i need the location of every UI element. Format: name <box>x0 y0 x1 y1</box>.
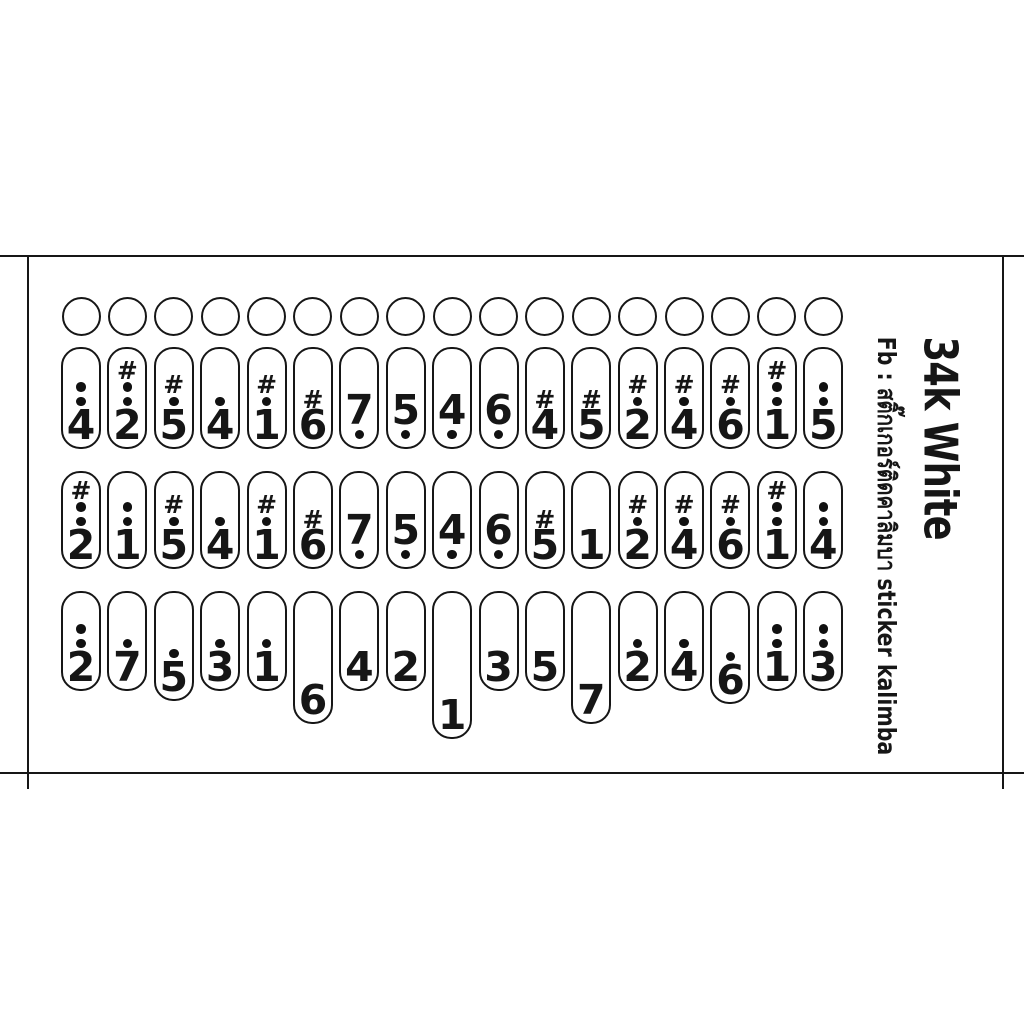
note-number: 5 <box>391 514 420 547</box>
kalimba-column: #6#66 <box>710 297 750 739</box>
note-number: 1 <box>438 699 467 732</box>
kalimba-sticker: #2 <box>618 347 658 449</box>
kalimba-sticker: 4 <box>432 471 472 569</box>
tine-hole-circle <box>572 297 611 336</box>
note-number: 1 <box>252 529 281 562</box>
note-number: 3 <box>206 651 235 684</box>
kalimba-column: 543 <box>803 297 843 739</box>
note-number: 4 <box>438 394 467 427</box>
note-number: 4 <box>809 529 838 562</box>
sharp-sign: # <box>256 375 277 394</box>
kalimba-column: 4#22 <box>61 297 101 739</box>
kalimba-sticker: #5 <box>154 347 194 449</box>
note-number: 2 <box>623 409 652 442</box>
note-number: 1 <box>763 409 792 442</box>
sharp-sign: # <box>163 375 184 394</box>
octave-dot-below <box>447 430 457 440</box>
kalimba-sticker: #1 <box>757 471 797 569</box>
kalimba-sticker: 5 <box>803 347 843 449</box>
kalimba-sticker: 2 <box>61 591 101 691</box>
note-number: 2 <box>623 529 652 562</box>
kalimba-sticker: 7 <box>107 591 147 691</box>
sharp-sign: # <box>256 495 277 514</box>
tine-hole-circle <box>804 297 843 336</box>
tine-hole-circle <box>154 297 193 336</box>
note-number: 7 <box>345 514 374 547</box>
sharp-sign: # <box>627 495 648 514</box>
kalimba-sticker: 4 <box>432 347 472 449</box>
octave-dot-above <box>76 624 86 634</box>
kalimba-column: 663 <box>479 297 519 739</box>
note-number: 5 <box>531 651 560 684</box>
kalimba-column: #4#44 <box>664 297 704 739</box>
crop-mark-bottom-line <box>0 772 1024 774</box>
note-number: 1 <box>252 651 281 684</box>
note-number: 6 <box>299 529 328 562</box>
kalimba-sticker: #4 <box>664 471 704 569</box>
crop-mark-top-line <box>0 255 1024 257</box>
note-number: 2 <box>623 651 652 684</box>
kalimba-sticker: 1 <box>247 591 287 691</box>
kalimba-sticker: 5 <box>154 591 194 701</box>
octave-dot-below <box>401 550 411 560</box>
note-number: 6 <box>484 514 513 547</box>
note-number: 2 <box>391 651 420 684</box>
note-number: 7 <box>577 684 606 717</box>
tine-hole-circle <box>201 297 240 336</box>
tine-hole-circle <box>293 297 332 336</box>
octave-dot-above <box>76 502 86 512</box>
kalimba-sticker: 4 <box>61 347 101 449</box>
note-number: 5 <box>577 409 606 442</box>
sharp-sign: # <box>766 361 787 380</box>
kalimba-sticker: #2 <box>107 347 147 449</box>
kalimba-sticker: 6 <box>710 591 750 704</box>
kalimba-sticker: #6 <box>293 471 333 569</box>
sharp-sign: # <box>674 495 695 514</box>
tine-hole-circle <box>757 297 796 336</box>
kalimba-sticker: #5 <box>525 471 565 569</box>
kalimba-sticker: 7 <box>339 347 379 449</box>
kalimba-sticker: #6 <box>293 347 333 449</box>
kalimba-sticker: 1 <box>757 591 797 691</box>
note-number: 7 <box>113 651 142 684</box>
kalimba-sticker: 7 <box>339 471 379 569</box>
tine-hole-circle <box>62 297 101 336</box>
note-number: 4 <box>670 529 699 562</box>
kalimba-sticker: #2 <box>61 471 101 569</box>
kalimba-sticker: 5 <box>386 347 426 449</box>
note-number: 5 <box>160 409 189 442</box>
kalimba-sticker-grid: 4#22#217#5#55443#1#11#6#66774552441663#4… <box>61 297 843 739</box>
kalimba-column: #6#66 <box>293 297 333 739</box>
octave-dot-above <box>123 502 133 512</box>
note-number: 2 <box>67 651 96 684</box>
octave-dot-above <box>123 382 133 392</box>
sharp-sign: # <box>117 361 138 380</box>
kalimba-column: 774 <box>339 297 379 739</box>
note-number: 4 <box>206 409 235 442</box>
sharp-sign: # <box>720 495 741 514</box>
tine-hole-circle <box>618 297 657 336</box>
tine-hole-circle <box>479 297 518 336</box>
kalimba-sticker: 3 <box>803 591 843 691</box>
kalimba-sticker: #2 <box>618 471 658 569</box>
tine-hole-circle <box>108 297 147 336</box>
kalimba-sticker: 4 <box>339 591 379 691</box>
product-title: 34k White <box>913 337 968 497</box>
tine-hole-circle <box>525 297 564 336</box>
tine-hole-circle <box>386 297 425 336</box>
octave-dot-below <box>401 430 411 440</box>
tine-hole-circle <box>665 297 704 336</box>
note-number: 5 <box>391 394 420 427</box>
sharp-sign: # <box>766 481 787 500</box>
kalimba-column: 552 <box>386 297 426 739</box>
note-number: 5 <box>160 661 189 694</box>
sharp-sign: # <box>674 375 695 394</box>
note-number: 3 <box>809 651 838 684</box>
crop-mark-right-line <box>1002 255 1004 789</box>
note-number: 1 <box>252 409 281 442</box>
octave-dot-above <box>819 624 829 634</box>
kalimba-sticker: #4 <box>525 347 565 449</box>
octave-dot-below <box>494 550 504 560</box>
product-subtitle: Fb : สติ๊กเกอร์ติดคาลิมบา sticker kalimb… <box>872 337 900 690</box>
note-number: 6 <box>716 409 745 442</box>
note-number: 6 <box>484 394 513 427</box>
note-number: 4 <box>670 651 699 684</box>
note-number: 1 <box>113 529 142 562</box>
octave-dot-above <box>819 502 829 512</box>
kalimba-sticker: 4 <box>664 591 704 691</box>
note-number: 1 <box>577 529 606 562</box>
kalimba-sticker: 3 <box>200 591 240 691</box>
sharp-sign: # <box>627 375 648 394</box>
octave-dot-above <box>772 502 782 512</box>
kalimba-column: #2#22 <box>618 297 658 739</box>
note-number: 6 <box>299 409 328 442</box>
tine-hole-circle <box>711 297 750 336</box>
kalimba-sticker: 1 <box>571 471 611 569</box>
kalimba-sticker: 2 <box>618 591 658 691</box>
note-number: 4 <box>345 651 374 684</box>
octave-dot-above <box>819 382 829 392</box>
kalimba-sticker: 4 <box>200 347 240 449</box>
sharp-sign: # <box>163 495 184 514</box>
kalimba-column: 441 <box>432 297 472 739</box>
tine-hole-circle <box>247 297 286 336</box>
kalimba-sticker: 6 <box>479 347 519 449</box>
note-number: 1 <box>763 529 792 562</box>
kalimba-sticker: #6 <box>710 347 750 449</box>
note-number: 6 <box>299 684 328 717</box>
kalimba-column: #217 <box>107 297 147 739</box>
octave-dot-above <box>76 382 86 392</box>
note-number: 4 <box>531 409 560 442</box>
kalimba-sticker: #1 <box>247 347 287 449</box>
kalimba-column: #4#55 <box>525 297 565 739</box>
kalimba-sticker: 3 <box>479 591 519 691</box>
kalimba-sticker: 7 <box>571 591 611 724</box>
octave-dot-below <box>355 430 365 440</box>
octave-dot-below <box>494 430 504 440</box>
note-number: 3 <box>484 651 513 684</box>
tine-hole-circle <box>340 297 379 336</box>
sharp-sign: # <box>71 481 92 500</box>
kalimba-sticker: 4 <box>803 471 843 569</box>
note-number: 2 <box>67 529 96 562</box>
note-number: 5 <box>531 529 560 562</box>
note-number: 6 <box>716 529 745 562</box>
kalimba-sticker: 6 <box>293 591 333 724</box>
kalimba-column: #1#11 <box>757 297 797 739</box>
kalimba-column: #5#55 <box>154 297 194 739</box>
kalimba-sticker: #5 <box>154 471 194 569</box>
kalimba-sticker: 2 <box>386 591 426 691</box>
note-number: 5 <box>160 529 189 562</box>
note-number: 4 <box>438 514 467 547</box>
octave-dot-below <box>355 550 365 560</box>
octave-dot-above <box>772 382 782 392</box>
kalimba-sticker: 5 <box>525 591 565 691</box>
note-number: 6 <box>716 664 745 697</box>
octave-dot-above <box>772 624 782 634</box>
note-number: 7 <box>345 394 374 427</box>
crop-mark-left-line <box>27 255 29 789</box>
kalimba-sticker: #1 <box>757 347 797 449</box>
note-number: 4 <box>67 409 96 442</box>
octave-dot-below <box>447 550 457 560</box>
kalimba-sticker: 6 <box>479 471 519 569</box>
kalimba-sticker: #1 <box>247 471 287 569</box>
tine-hole-circle <box>433 297 472 336</box>
note-number: 2 <box>113 409 142 442</box>
note-number: 4 <box>206 529 235 562</box>
kalimba-sticker: 1 <box>107 471 147 569</box>
note-number: 1 <box>763 651 792 684</box>
kalimba-sticker: #5 <box>571 347 611 449</box>
sharp-sign: # <box>720 375 741 394</box>
kalimba-column: #1#11 <box>247 297 287 739</box>
kalimba-column: #517 <box>571 297 611 739</box>
kalimba-sticker: 5 <box>386 471 426 569</box>
kalimba-sticker: #4 <box>664 347 704 449</box>
kalimba-sticker: 4 <box>200 471 240 569</box>
note-number: 5 <box>809 409 838 442</box>
note-number: 4 <box>670 409 699 442</box>
kalimba-sticker: 1 <box>432 591 472 739</box>
kalimba-sticker: #6 <box>710 471 750 569</box>
kalimba-column: 443 <box>200 297 240 739</box>
